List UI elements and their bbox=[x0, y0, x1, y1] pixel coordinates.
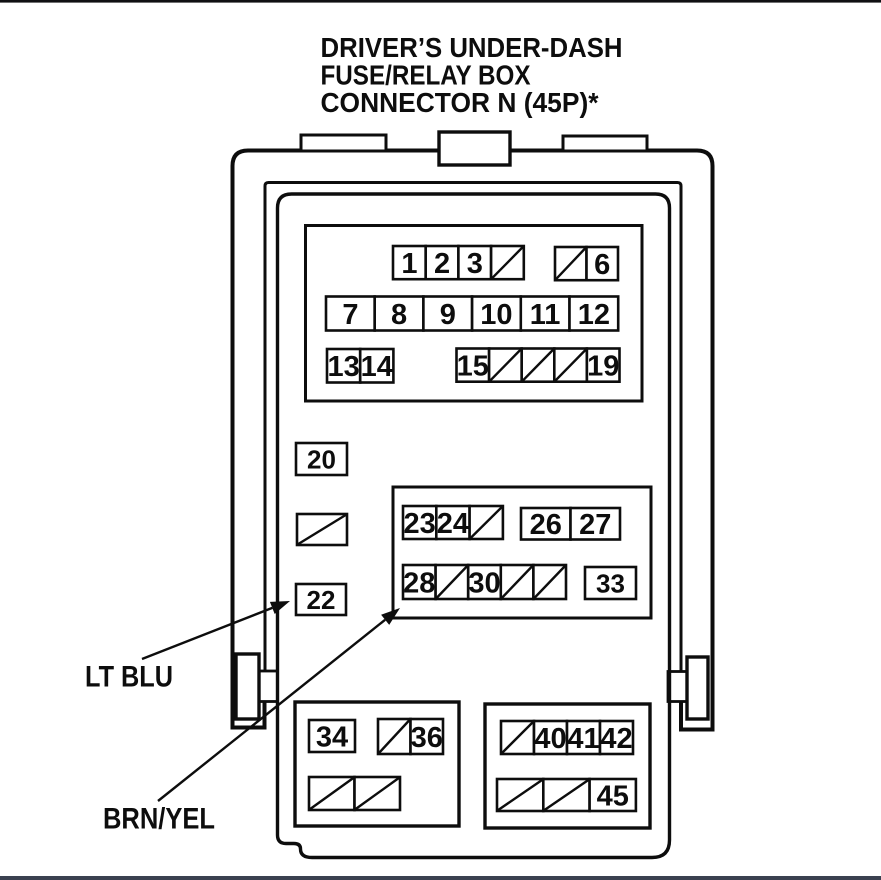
svg-text:1: 1 bbox=[401, 248, 417, 280]
svg-text:2: 2 bbox=[434, 248, 450, 280]
svg-text:LT BLU: LT BLU bbox=[85, 661, 173, 694]
svg-text:20: 20 bbox=[307, 444, 336, 474]
svg-text:22: 22 bbox=[307, 585, 336, 615]
svg-text:DRIVER’S UNDER-DASH: DRIVER’S UNDER-DASH bbox=[321, 32, 623, 63]
svg-text:19: 19 bbox=[587, 351, 619, 383]
svg-text:10: 10 bbox=[480, 299, 512, 331]
svg-text:28: 28 bbox=[403, 567, 435, 599]
svg-text:11: 11 bbox=[530, 299, 561, 331]
svg-text:15: 15 bbox=[457, 351, 489, 383]
svg-text:30: 30 bbox=[468, 567, 500, 599]
svg-text:FUSE/RELAY BOX: FUSE/RELAY BOX bbox=[321, 60, 531, 91]
svg-text:33: 33 bbox=[596, 568, 625, 598]
svg-text:24: 24 bbox=[437, 508, 469, 540]
svg-text:36: 36 bbox=[411, 722, 443, 754]
svg-text:45: 45 bbox=[597, 780, 629, 812]
svg-text:BRN/YEL: BRN/YEL bbox=[103, 803, 215, 836]
svg-text:40: 40 bbox=[534, 723, 566, 755]
svg-text:26: 26 bbox=[530, 509, 562, 541]
svg-text:9: 9 bbox=[440, 299, 456, 331]
svg-text:CONNECTOR N (45P)*: CONNECTOR N (45P)* bbox=[321, 87, 599, 118]
svg-text:8: 8 bbox=[391, 299, 407, 331]
svg-text:41: 41 bbox=[567, 723, 599, 755]
svg-text:6: 6 bbox=[594, 249, 610, 281]
svg-text:34: 34 bbox=[316, 721, 348, 753]
svg-text:23: 23 bbox=[403, 508, 435, 540]
svg-text:14: 14 bbox=[361, 351, 393, 383]
svg-text:27: 27 bbox=[579, 509, 611, 541]
svg-text:7: 7 bbox=[342, 299, 358, 331]
svg-text:3: 3 bbox=[467, 248, 483, 280]
svg-text:12: 12 bbox=[578, 299, 610, 331]
svg-text:42: 42 bbox=[600, 723, 632, 755]
svg-text:13: 13 bbox=[327, 351, 359, 383]
